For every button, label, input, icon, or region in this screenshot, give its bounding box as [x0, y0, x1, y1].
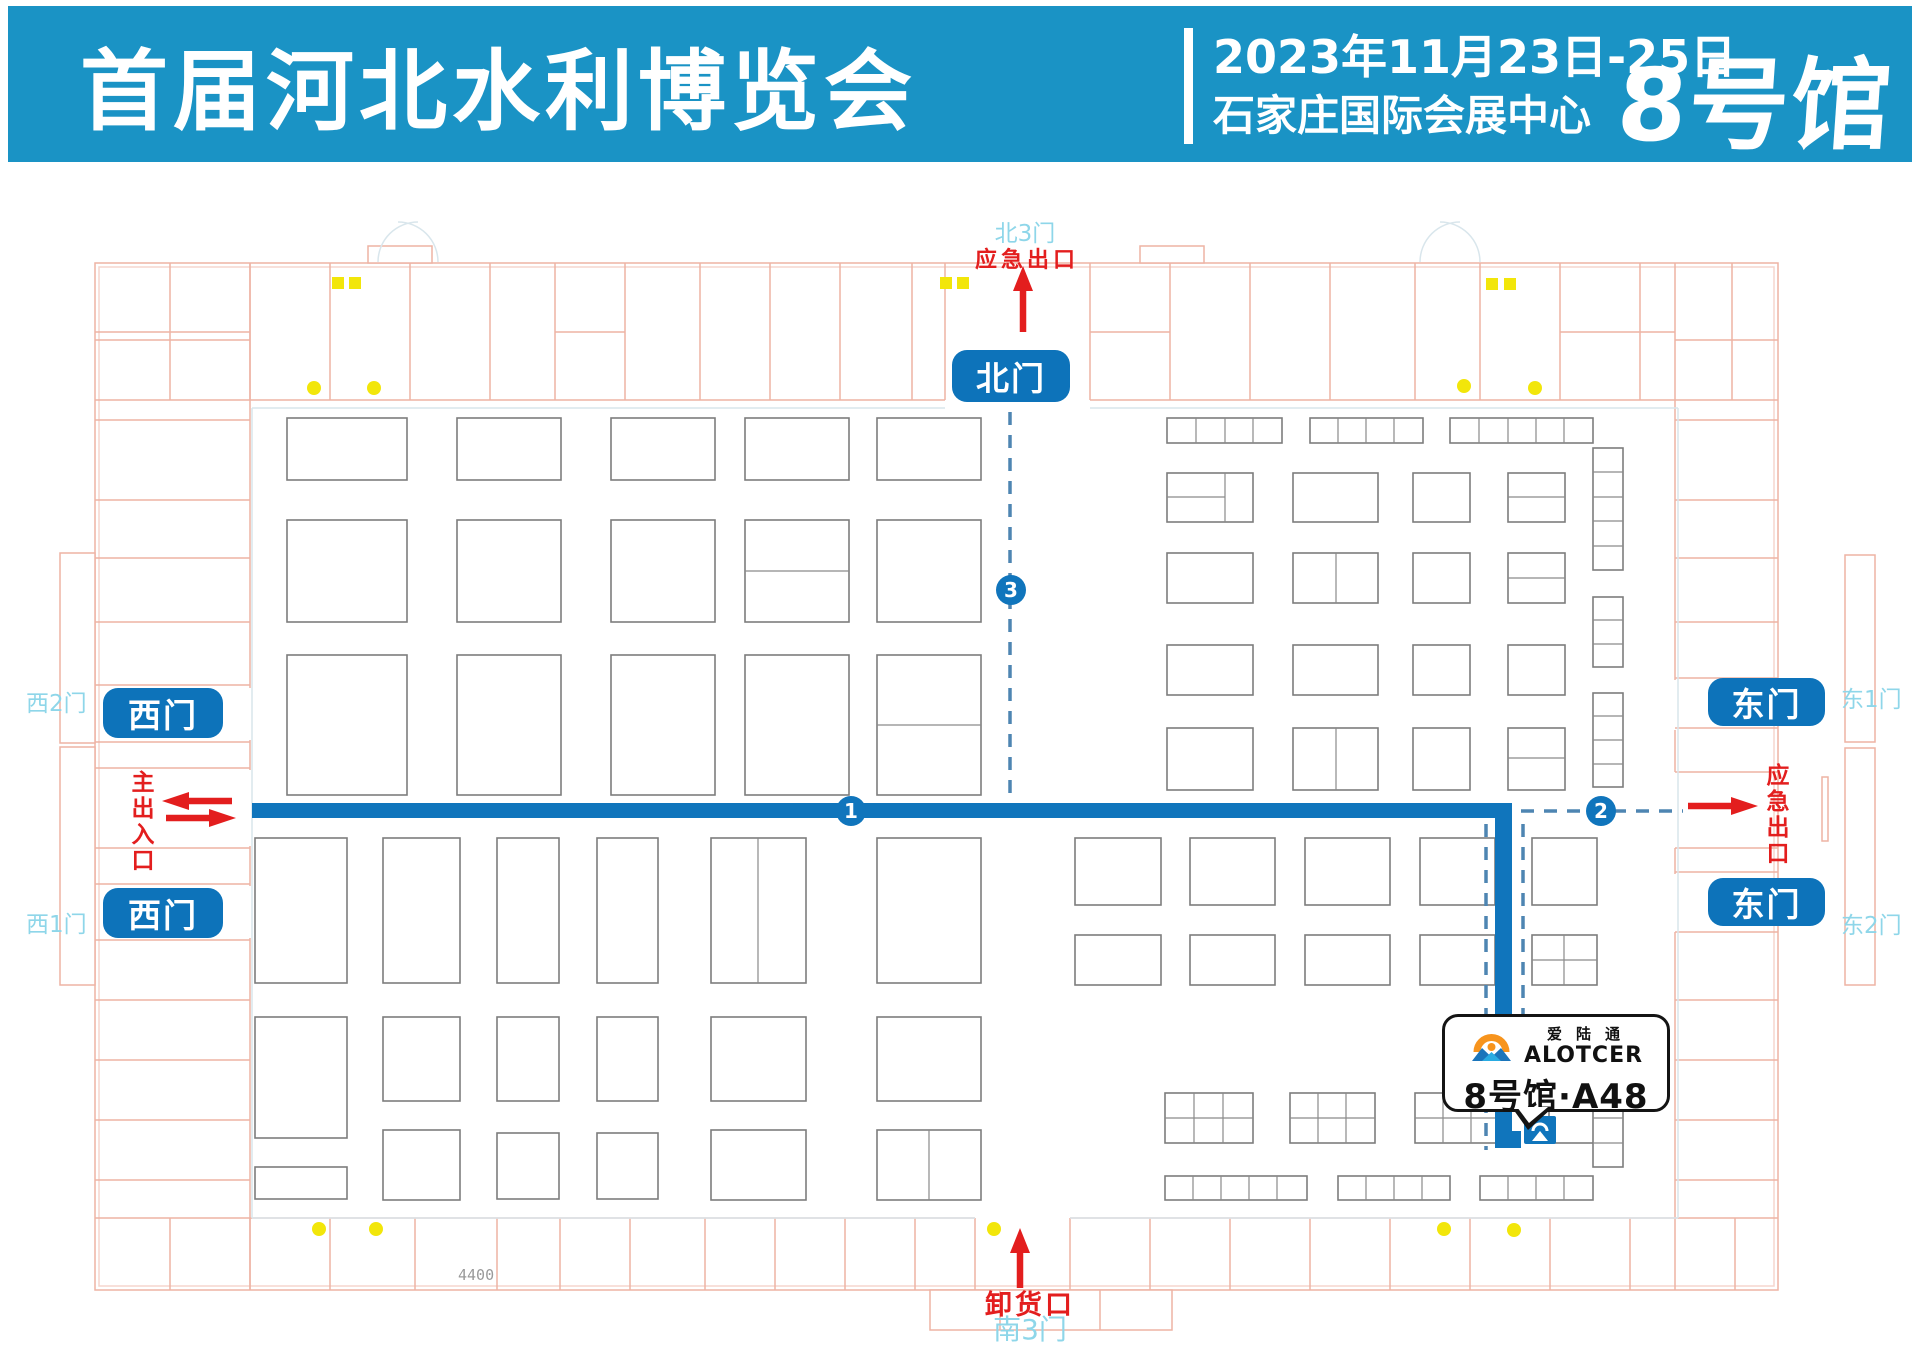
west-entrance-out-arrow-icon [162, 792, 232, 810]
brand-name-cn: 爱陆通 [1533, 1023, 1634, 1044]
west-gate-pill-lower: 西门 [103, 888, 223, 938]
booth-number: 8号馆·A48 [1453, 1069, 1659, 1118]
east-gate-pill-lower: 东门 [1708, 878, 1825, 926]
south-unloading-arrow-icon [1010, 1228, 1030, 1288]
east-emergency-exit-label: 应急出口 [1763, 763, 1786, 867]
alotcer-logo-icon [1469, 1028, 1515, 1064]
main-entrance-label: 主出入口 [128, 770, 151, 874]
west-entrance-in-arrow-icon [166, 809, 236, 827]
route-marker-3: 3 [996, 575, 1026, 605]
cad-dimension-text: 4400 [458, 1266, 494, 1284]
door-label-west1: 西1门 [26, 905, 87, 939]
route-marker-2: 2 [1586, 796, 1616, 826]
expo-floorplan-poster: { "header": { "title": "首届河北水利博览会", "dat… [0, 0, 1920, 1357]
door-label-east1: 东1门 [1841, 680, 1902, 714]
floorplan-canvas: 4400 [0, 0, 1920, 1357]
west-gate-pill-upper: 西门 [103, 688, 223, 738]
east-exit-arrow-icon [1688, 797, 1758, 815]
route-marker-1: 1 [836, 796, 866, 826]
brand-text: 爱陆通 ALOTCER [1524, 1023, 1643, 1068]
brand-name-en: ALOTCER [1524, 1043, 1643, 1068]
door-label-south3: 南3门 [955, 1308, 1105, 1348]
north-emergency-exit-label: 应急出口 [952, 242, 1102, 274]
door-label-west2: 西2门 [26, 684, 87, 718]
north-exit-arrow-icon [1013, 266, 1033, 332]
east-gate-pill-upper: 东门 [1708, 678, 1825, 726]
door-label-east2: 东2门 [1841, 906, 1902, 940]
north-gate-pill: 北门 [952, 350, 1070, 402]
booth-callout: 爱陆通 ALOTCER 8号馆·A48 [1442, 1014, 1670, 1112]
